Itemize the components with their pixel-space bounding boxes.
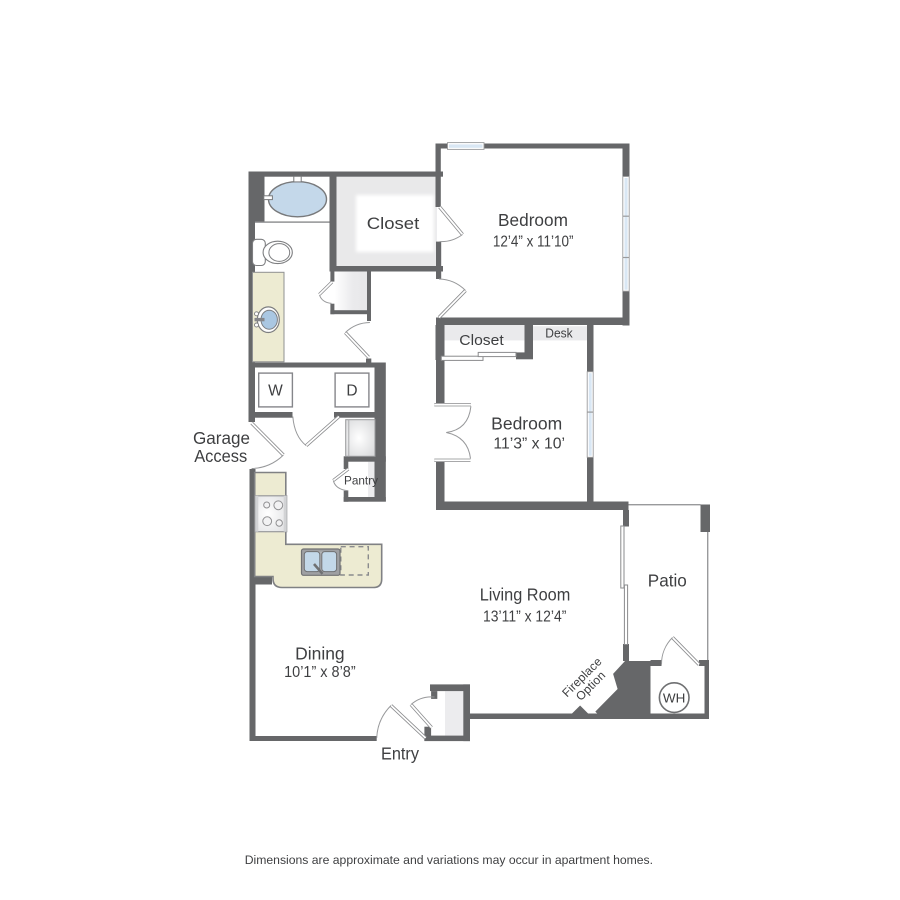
svg-text:Patio: Patio [648, 570, 687, 590]
svg-text:Closet: Closet [459, 333, 503, 349]
svg-text:Bedroom: Bedroom [491, 413, 562, 433]
svg-text:12’4” x 11’10”: 12’4” x 11’10” [493, 234, 574, 251]
svg-text:13’11” x 12’4”: 13’11” x 12’4” [483, 609, 566, 626]
svg-text:Access: Access [194, 446, 247, 466]
svg-text:Bedroom: Bedroom [498, 210, 568, 230]
svg-text:WH: WH [663, 690, 686, 705]
svg-text:Dimensions are approximate and: Dimensions are approximate and variation… [245, 853, 653, 867]
svg-text:Desk: Desk [545, 326, 573, 341]
svg-text:W: W [268, 383, 283, 400]
svg-text:D: D [346, 383, 357, 400]
svg-text:Living Room: Living Room [480, 585, 571, 605]
svg-text:Pantry: Pantry [344, 474, 379, 488]
svg-text:Dining: Dining [295, 644, 345, 664]
svg-text:Closet: Closet [367, 214, 420, 233]
svg-text:10’1” x 8’8”: 10’1” x 8’8” [284, 664, 356, 681]
svg-text:Garage: Garage [193, 428, 250, 448]
svg-text:11’3” x 10’: 11’3” x 10’ [493, 436, 565, 453]
svg-text:Entry: Entry [381, 743, 419, 763]
